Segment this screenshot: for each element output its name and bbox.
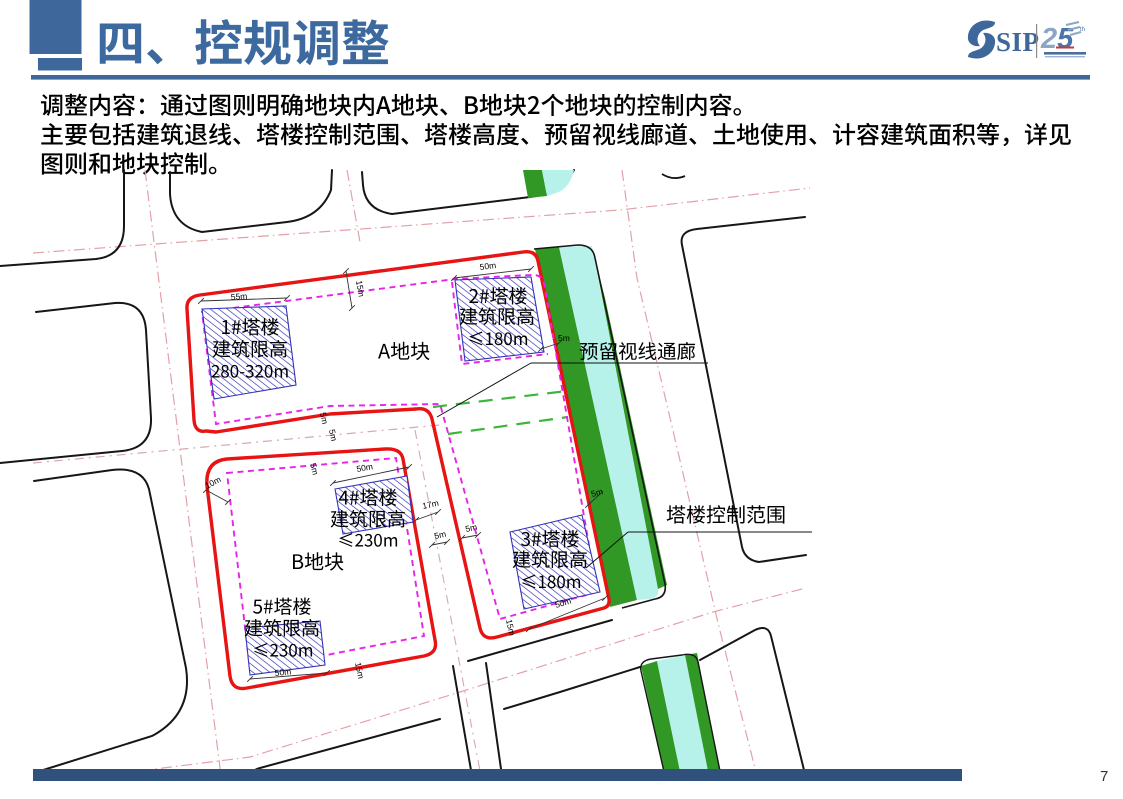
svg-text:7: 7 xyxy=(1100,768,1108,785)
svg-text:55m: 55m xyxy=(230,291,247,302)
svg-text:5m: 5m xyxy=(558,333,570,343)
svg-text:25: 25 xyxy=(1040,23,1074,55)
svg-text:SIP: SIP xyxy=(996,27,1040,57)
svg-text:50m: 50m xyxy=(356,461,374,474)
svg-text:17m: 17m xyxy=(421,498,439,511)
svg-text:5m: 5m xyxy=(308,462,321,476)
svg-text:5m: 5m xyxy=(318,411,330,425)
svg-text:15m: 15m xyxy=(353,661,366,679)
svg-text:5m: 5m xyxy=(327,428,339,442)
svg-text:15m: 15m xyxy=(354,280,367,298)
svg-text:50m: 50m xyxy=(274,666,292,678)
svg-text:th: th xyxy=(1080,27,1085,33)
svg-text:50m: 50m xyxy=(479,260,497,272)
svg-text:5m: 5m xyxy=(433,529,447,541)
